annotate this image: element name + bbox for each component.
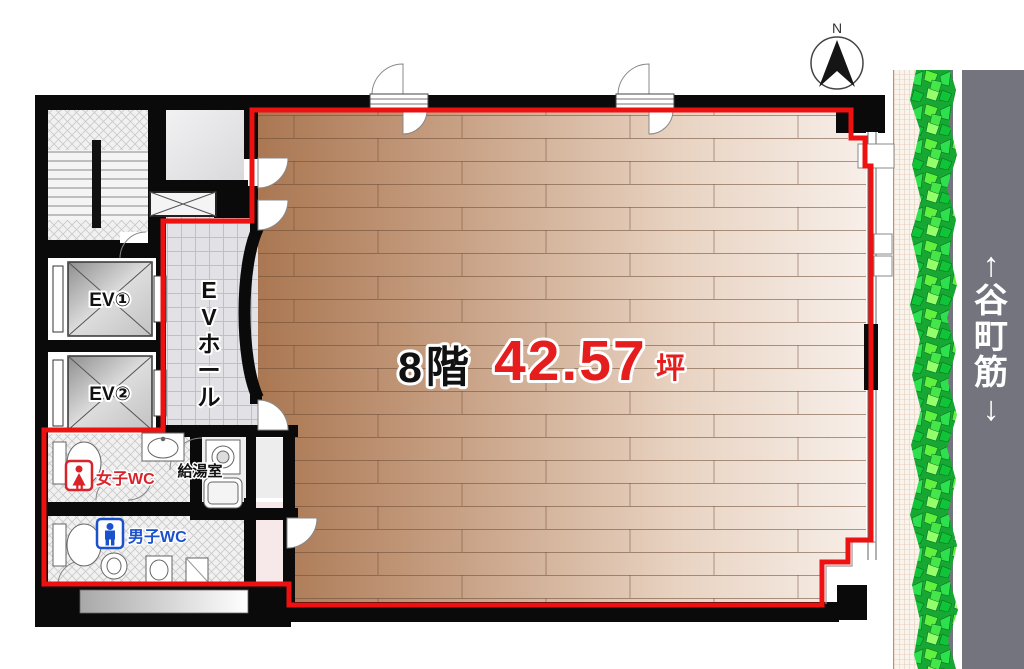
exterior-panel xyxy=(80,590,248,613)
elevator-1: EV① xyxy=(48,258,166,340)
elevator-2: EV② xyxy=(48,352,166,434)
area-value: 42.57 xyxy=(494,329,647,393)
ev-hall-char-3: ー xyxy=(198,357,221,383)
ev-hall-char-2: ホ xyxy=(198,331,221,357)
machine-room xyxy=(164,109,244,180)
compass-north-label: N xyxy=(832,20,842,36)
toilet-tank-2 xyxy=(53,524,66,566)
womens-wc-label: 女子WC xyxy=(96,469,155,488)
street-arrow-down: ↓ xyxy=(983,390,1000,428)
floorplan-canvas: ↑ 谷 町 筋 ↓ N xyxy=(0,0,1024,669)
stairs-door-gap xyxy=(120,232,148,243)
pipe-shaft xyxy=(150,192,216,216)
area-unit: 坪 xyxy=(656,352,685,385)
stairs-handrail xyxy=(92,140,101,228)
toilet-tank-1 xyxy=(53,442,66,484)
window-sill-1 xyxy=(874,234,892,254)
streetscape: ↑ 谷 町 筋 ↓ xyxy=(893,70,1024,669)
street-char-2: 町 xyxy=(974,318,1008,356)
floor-plan: ↑ 谷 町 筋 ↓ N xyxy=(0,0,1024,669)
street-char-1: 谷 xyxy=(974,282,1008,320)
elevator-1-label: EV① xyxy=(89,290,130,311)
ev-hall-char-1: V xyxy=(201,304,217,330)
ev-hall-char-0: E xyxy=(201,277,216,303)
street-char-3: 筋 xyxy=(974,354,1008,392)
kitchenette-label: 給湯室 xyxy=(177,462,222,480)
floor-number-label: 8階 xyxy=(398,344,473,392)
compass: N xyxy=(811,20,863,89)
street-arrow-up: ↑ xyxy=(983,246,1000,284)
mens-wc-label: 男子WC xyxy=(128,528,187,546)
window-sill-2 xyxy=(874,256,892,276)
service-nook xyxy=(254,438,283,498)
ev-hall-char-4: ル xyxy=(198,384,221,410)
elevator-2-label: EV② xyxy=(89,384,130,405)
